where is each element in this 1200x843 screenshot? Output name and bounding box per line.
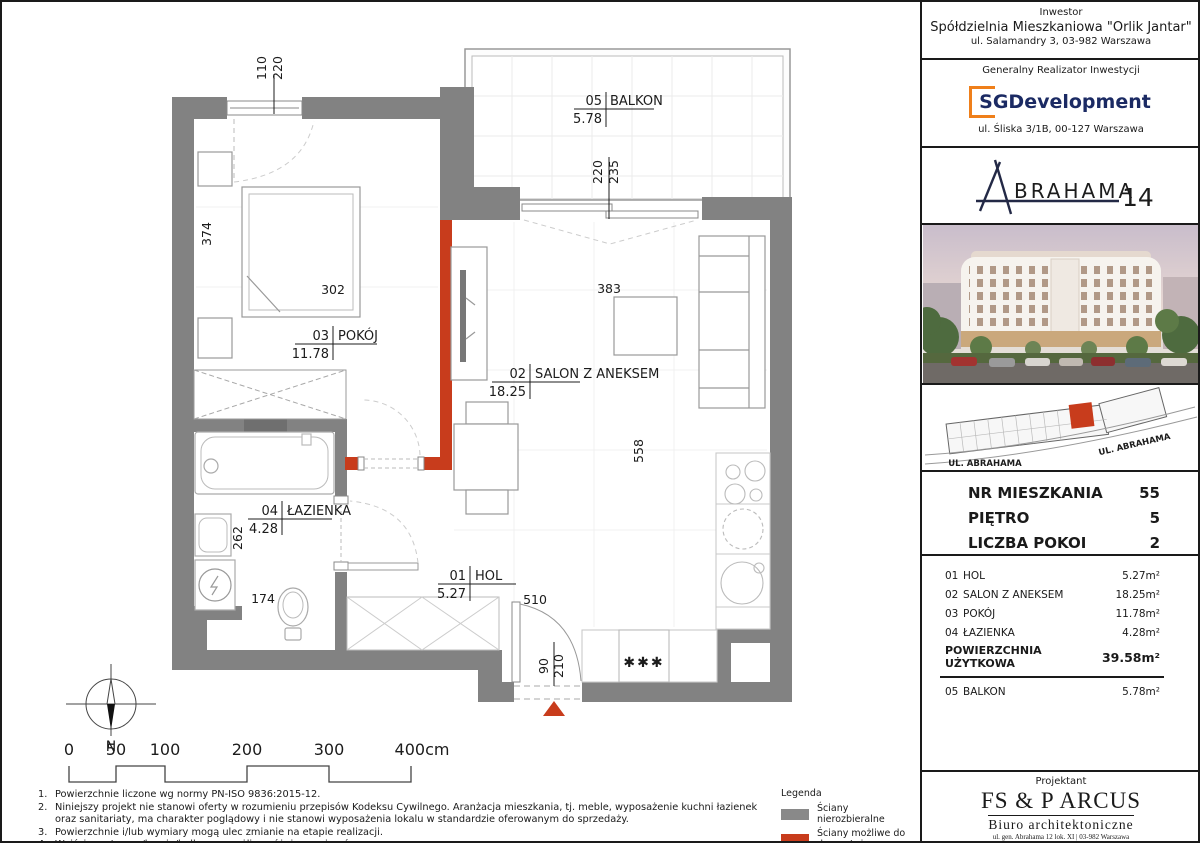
legend-title: Legenda [781,788,919,799]
area-name: HOL [963,570,1122,582]
total-area-label-1: POWIERZCHNIA [945,644,1102,657]
bedroom-furniture [198,152,360,358]
sgdevelopment-logo-text: SGDevelopment [979,91,1151,113]
wardrobe-hall [347,597,499,650]
area-row-lazienka: 04 ŁAZIENKA 4.28m² [922,623,1200,642]
room-area-pokoj: 11.78 [292,347,329,362]
room-name-balkon: BALKON [610,94,663,109]
unit-info-box: NR MIESZKANIA 55 PIĘTRO 5 LICZBA POKOI 2 [922,472,1200,556]
unit-number-label: NR MIESZKANIA [968,484,1103,502]
wall-legend: Legenda Ściany nierozbieralne Ściany moż… [781,788,919,843]
brand-number-text: 14 [1122,183,1154,212]
investor-label: Inwestor [922,7,1200,18]
area-value: 5.27m² [1122,570,1160,582]
floor-plan-drawing: ✱✱✱ [2,2,922,784]
dim-balcony-door-h: 235 [606,160,621,184]
street-label-right: UL. ABRAHAMA [1098,432,1172,458]
unit-location-marker [1069,402,1095,429]
info-sidebar: Inwestor Spółdzielnia Mieszkaniowa "Orli… [920,2,1200,841]
total-area-row: POWIERZCHNIA UŻYTKOWA 39.58m² [922,642,1200,672]
rooms-count-label: LICZBA POKOI [968,534,1086,552]
areas-divider [940,676,1164,678]
dim-balcony-door-w: 220 [590,160,605,184]
area-no: 05 [945,686,963,698]
room-id-lazienka: 04 [261,504,278,519]
room-name-lazienka: ŁAZIENKA [286,504,351,519]
developer-box: Generalny Realizator Inwestycji SGDevelo… [922,60,1200,148]
designer-name: FS & P ARCUS [922,788,1200,814]
area-name: ŁAZIENKA [963,627,1122,639]
footnote-4-num: 4. [38,839,55,843]
dim-bed-width: 302 [321,282,345,297]
area-no: 04 [945,627,963,639]
legend-fixed-label: Ściany nierozbieralne [817,803,919,825]
room-area-hol: 5.27 [437,587,466,602]
investor-box: Inwestor Spółdzielnia Mieszkaniowa "Orli… [922,2,1200,60]
dim-bath-width: 174 [251,591,275,606]
dim-salon-width: 383 [597,281,621,296]
floor-plan-sheet: ✱✱✱ [0,0,1200,843]
room-area-balkon: 5.78 [573,112,602,127]
area-name: SALON Z ANEKSEM [963,589,1116,601]
dim-salon-length: 558 [631,439,646,463]
red-wall-swatch [781,834,809,843]
siteplan-box: UL. ABRAHAMA UL. ABRAHAMA [922,385,1200,472]
scale-tick-300: 300 [314,740,345,759]
unit-number-row: NR MIESZKANIA 55 [922,480,1200,505]
scale-tick-200: 200 [232,740,263,759]
designer-label: Projektant [922,776,1200,787]
developer-address: ul. Śliska 3/1B, 00-127 Warszawa [922,124,1200,135]
area-value: 5.78m² [1122,686,1160,698]
dim-bed-length: 374 [199,222,214,246]
area-value: 4.28m² [1122,627,1160,639]
gray-wall-swatch [781,809,809,820]
area-name: BALKON [963,686,1122,698]
dim-window-w: 110 [254,56,269,80]
floor-row: PIĘTRO 5 [922,505,1200,530]
investor-address: ul. Salamandry 3, 03-982 Warszawa [922,36,1200,47]
area-value: 18.25m² [1116,589,1161,601]
legend-removable-label: Ściany możliwe do demontażu [817,828,919,843]
removable-walls [345,220,452,470]
room-area-salon: 18.25 [489,385,526,400]
area-row-pokoj: 03 POKÓJ 11.78m² [922,604,1200,623]
scale-bar: 0 50 100 200 300 400cm [64,740,450,782]
footnote-4: 4. Wyjście na tarasy/loggie/balkony - mo… [38,839,762,843]
area-row-hol: 01 HOL 5.27m² [922,566,1200,585]
footnote-1-text: Powierzchnie liczone wg normy PN-ISO 983… [55,789,762,802]
footnote-3-text: Powierzchnie i/lub wymiary mogą ulec zmi… [55,827,762,840]
building-photo-box [922,225,1200,385]
investor-name: Spółdzielnia Mieszkaniowa "Orlik Jantar" [922,20,1200,35]
dim-hall-length: 510 [523,592,547,607]
building-photo [923,225,1199,383]
room-name-salon: SALON Z ANEKSEM [535,367,659,382]
dim-entry-door-w: 90 [536,658,551,674]
kitchen [582,453,770,682]
floor-value: 5 [1150,509,1160,527]
footnote-2: 2. Niniejszy projekt nie stanowi oferty … [38,802,762,827]
dim-bath-length: 262 [230,526,245,550]
footnote-2-text: Niniejszy projekt nie stanowi oferty w r… [55,802,762,827]
room-id-salon: 02 [509,367,526,382]
legend-item-fixed-walls: Ściany nierozbieralne [781,803,919,825]
street-label-left: UL. ABRAHAMA [948,459,1022,469]
project-brand-box: BRAHAMA 14 [922,148,1200,225]
room-id-balkon: 05 [585,94,602,109]
footnote-2-num: 2. [38,802,55,827]
abrahama14-logo: BRAHAMA 14 [956,157,1166,215]
area-no: 02 [945,589,963,601]
room-id-pokoj: 03 [312,329,329,344]
footnotes: 1. Powierzchnie liczone wg normy PN-ISO … [38,789,762,843]
footnote-3: 3. Powierzchnie i/lub wymiary mogą ulec … [38,827,762,840]
areas-table-box: 01 HOL 5.27m² 02 SALON Z ANEKSEM 18.25m²… [922,556,1200,772]
siteplan-drawing: UL. ABRAHAMA UL. ABRAHAMA [923,385,1199,470]
footnote-1-num: 1. [38,789,55,802]
balcony [465,49,790,200]
entrance-marker [543,701,565,716]
freezer-symbol: ✱✱✱ [623,655,664,671]
developer-label: Generalny Realizator Inwestycji [922,65,1200,76]
dim-entry-door-h: 210 [551,654,566,678]
designer-subname: Biuro architektoniczne [988,815,1133,833]
area-value: 11.78m² [1116,608,1161,620]
room-name-pokoj: POKÓJ [338,328,378,344]
dim-window-h: 220 [270,56,285,80]
footnote-4-text: Wyjście na tarasy/loggie/balkony - możli… [55,839,762,843]
room-name-hol: HOL [475,569,503,584]
wardrobe-bedroom [194,370,346,419]
legend-item-removable-walls: Ściany możliwe do demontażu [781,828,919,843]
area-no: 03 [945,608,963,620]
sgdevelopment-logo: SGDevelopment [969,86,1153,118]
area-row-salon: 02 SALON Z ANEKSEM 18.25m² [922,585,1200,604]
room-id-hol: 01 [449,569,466,584]
rooms-count-value: 2 [1150,534,1160,552]
scale-tick-0: 0 [64,740,74,759]
total-area-value: 39.58m² [1102,650,1160,665]
floor-label: PIĘTRO [968,509,1029,527]
footnote-3-num: 3. [38,827,55,840]
scale-tick-100: 100 [150,740,181,759]
brand-name-text: BRAHAMA [1014,179,1135,203]
scale-tick-50: 50 [106,740,126,759]
rooms-count-row: LICZBA POKOI 2 [922,530,1200,555]
area-name: POKÓJ [963,608,1116,620]
footnote-1: 1. Powierzchnie liczone wg normy PN-ISO … [38,789,762,802]
scale-tick-400: 400cm [395,740,450,759]
area-row-balkon: 05 BALKON 5.78m² [922,682,1200,701]
total-area-label-2: UŻYTKOWA [945,657,1102,670]
designer-address-1: ul. gen. Abrahama 12 lok. XI | 03-982 Wa… [922,833,1200,841]
area-no: 01 [945,570,963,582]
room-area-lazienka: 4.28 [249,522,278,537]
designer-box: Projektant FS & P ARCUS Biuro architekto… [922,772,1200,839]
unit-number-value: 55 [1139,484,1160,502]
